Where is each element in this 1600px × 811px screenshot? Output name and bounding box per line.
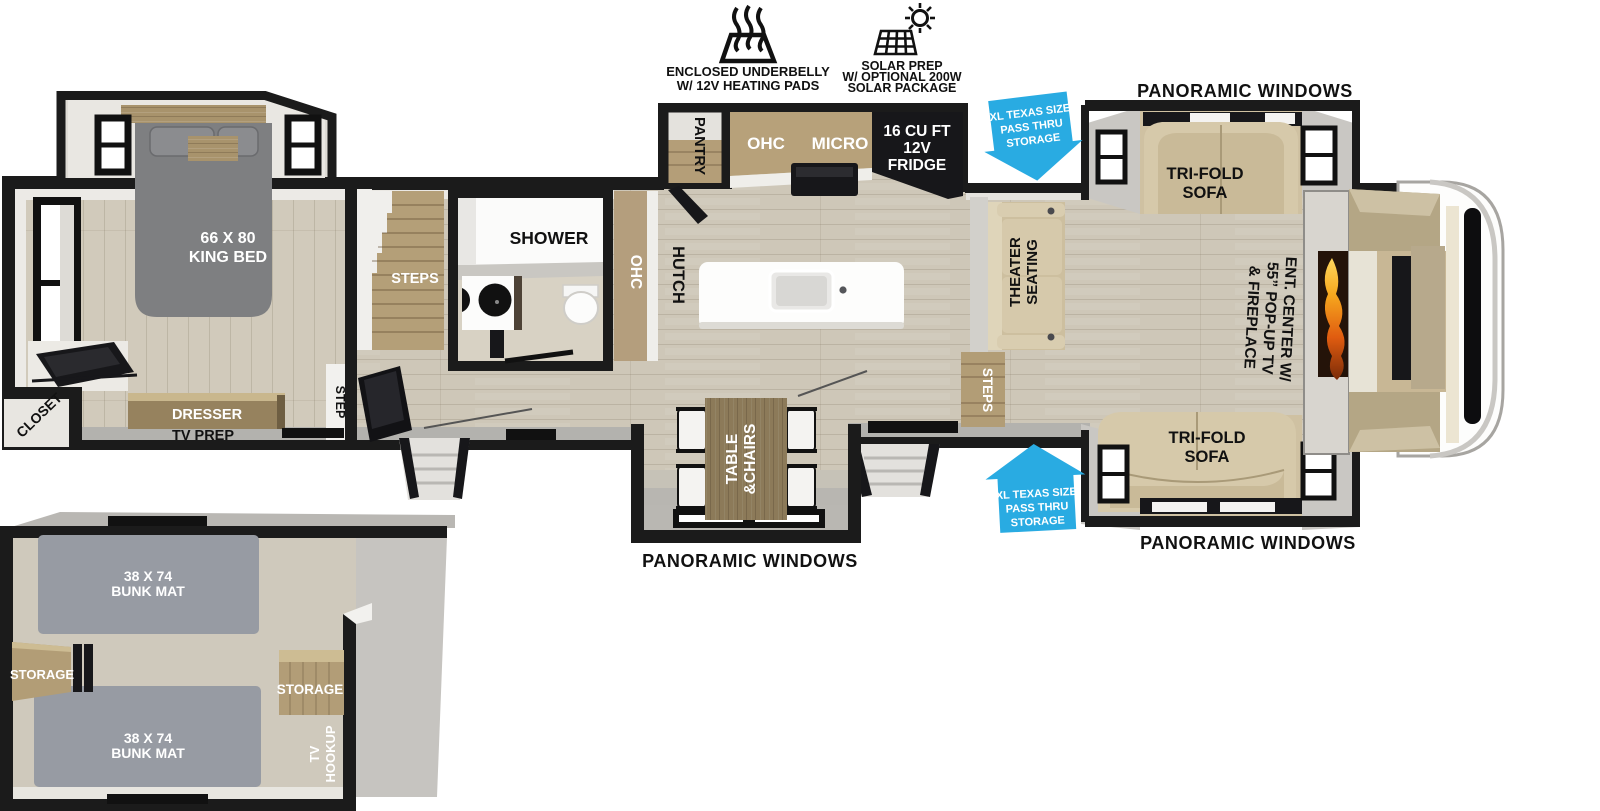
svg-text:FRIDGE: FRIDGE — [888, 157, 947, 174]
svg-text:KING BED: KING BED — [189, 249, 267, 266]
svg-text:STORAGE: STORAGE — [277, 682, 344, 697]
svg-text:ENCLOSED UNDERBELLY: ENCLOSED UNDERBELLY — [666, 64, 830, 79]
svg-text:12V: 12V — [903, 140, 931, 157]
svg-text:66 X 80: 66 X 80 — [200, 230, 255, 247]
svg-text:SOFA: SOFA — [1185, 448, 1230, 466]
svg-text:HUTCH: HUTCH — [669, 246, 687, 304]
svg-text:OHC: OHC — [627, 255, 644, 289]
svg-text:BUNK MAT: BUNK MAT — [111, 745, 185, 761]
svg-text:TV: TV — [307, 745, 322, 762]
svg-text:SOFA: SOFA — [1183, 184, 1228, 202]
svg-text:38 X 74: 38 X 74 — [124, 568, 172, 584]
svg-text:OHC: OHC — [747, 134, 785, 153]
svg-text:TV PREP: TV PREP — [172, 428, 234, 444]
svg-text:HOOKUP: HOOKUP — [323, 725, 338, 782]
svg-text:STEP: STEP — [333, 386, 347, 419]
svg-text:PANORAMIC WINDOWS: PANORAMIC WINDOWS — [1140, 533, 1356, 553]
svg-text:16 CU FT: 16 CU FT — [883, 123, 951, 140]
svg-text:TABLE: TABLE — [724, 434, 741, 485]
svg-text:W/ 12V HEATING PADS: W/ 12V HEATING PADS — [677, 78, 820, 93]
svg-text:THEATER: THEATER — [1007, 237, 1024, 307]
svg-text:38 X 74: 38 X 74 — [124, 730, 172, 746]
svg-text:PANTRY: PANTRY — [691, 117, 707, 175]
svg-text:STEPS: STEPS — [391, 271, 439, 287]
svg-text:SHOWER: SHOWER — [510, 228, 589, 248]
svg-text:&CHAIRS: &CHAIRS — [742, 424, 759, 495]
svg-text:STORAGE: STORAGE — [10, 667, 74, 682]
svg-text:TRI-FOLD: TRI-FOLD — [1167, 165, 1244, 183]
svg-text:PANORAMIC WINDOWS: PANORAMIC WINDOWS — [642, 551, 858, 571]
svg-text:SEATING: SEATING — [1024, 239, 1041, 305]
svg-text:STEPS: STEPS — [980, 368, 995, 412]
svg-text:BUNK MAT: BUNK MAT — [111, 583, 185, 599]
svg-text:MICRO: MICRO — [812, 134, 869, 153]
svg-text:DRESSER: DRESSER — [172, 407, 243, 423]
svg-text:PANORAMIC WINDOWS: PANORAMIC WINDOWS — [1137, 81, 1353, 101]
svg-text:SOLAR PACKAGE: SOLAR PACKAGE — [848, 81, 957, 95]
svg-text:TRI-FOLD: TRI-FOLD — [1169, 429, 1246, 447]
